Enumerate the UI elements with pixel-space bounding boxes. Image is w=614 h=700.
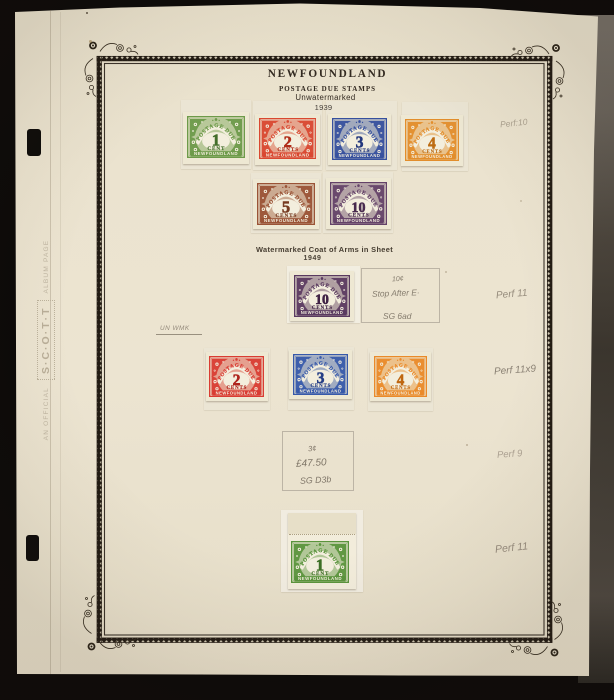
svg-text:CENTS: CENTS bbox=[348, 213, 369, 219]
svg-text:CENTS: CENTS bbox=[350, 148, 371, 154]
svg-text:CENT: CENT bbox=[207, 146, 225, 152]
svg-text:CENT: CENT bbox=[311, 571, 329, 577]
svg-text:CENTS: CENTS bbox=[422, 150, 442, 155]
svg-text:CENTS: CENTS bbox=[312, 305, 333, 311]
svg-text:CENTS: CENTS bbox=[227, 386, 248, 391]
svg-text:CENTS: CENTS bbox=[275, 213, 297, 219]
svg-text:CENTS: CENTS bbox=[311, 384, 332, 389]
svg-text:CENTS: CENTS bbox=[391, 386, 411, 391]
svg-text:CENTS: CENTS bbox=[277, 147, 299, 153]
